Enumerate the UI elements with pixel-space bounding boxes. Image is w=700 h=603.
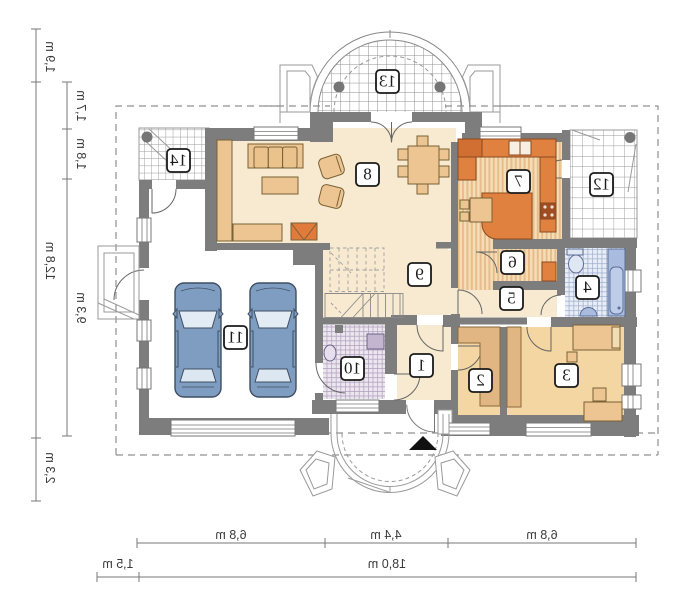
svg-text:4: 4 — [583, 278, 592, 297]
svg-text:14: 14 — [170, 151, 188, 170]
svg-text:12,8 m: 12,8 m — [43, 242, 57, 280]
svg-text:8: 8 — [363, 165, 372, 184]
svg-text:9: 9 — [415, 265, 424, 284]
svg-text:9,3 m: 9,3 m — [74, 292, 88, 323]
svg-text:1,9 m: 1,9 m — [43, 41, 57, 72]
svg-text:1,7 m: 1,7 m — [74, 90, 88, 121]
svg-text:6: 6 — [508, 253, 517, 272]
svg-text:18,0 m: 18,0 m — [368, 557, 406, 571]
svg-text:4,4 m: 4,4 m — [370, 528, 401, 542]
svg-text:2: 2 — [476, 371, 485, 390]
svg-text:1,8 m: 1,8 m — [74, 138, 88, 169]
svg-text:1: 1 — [417, 356, 426, 375]
svg-text:6,8 m: 6,8 m — [215, 528, 246, 542]
svg-text:2,3 m: 2,3 m — [43, 452, 57, 483]
svg-text:10: 10 — [344, 359, 361, 378]
svg-text:13: 13 — [379, 72, 396, 91]
svg-text:5: 5 — [507, 289, 516, 308]
svg-text:7: 7 — [514, 172, 523, 191]
svg-text:1,5 m: 1,5 m — [102, 557, 133, 571]
svg-text:12: 12 — [593, 175, 610, 194]
svg-text:6,8 m: 6,8 m — [526, 528, 557, 542]
svg-text:3: 3 — [562, 366, 571, 385]
svg-text:11: 11 — [227, 328, 243, 347]
